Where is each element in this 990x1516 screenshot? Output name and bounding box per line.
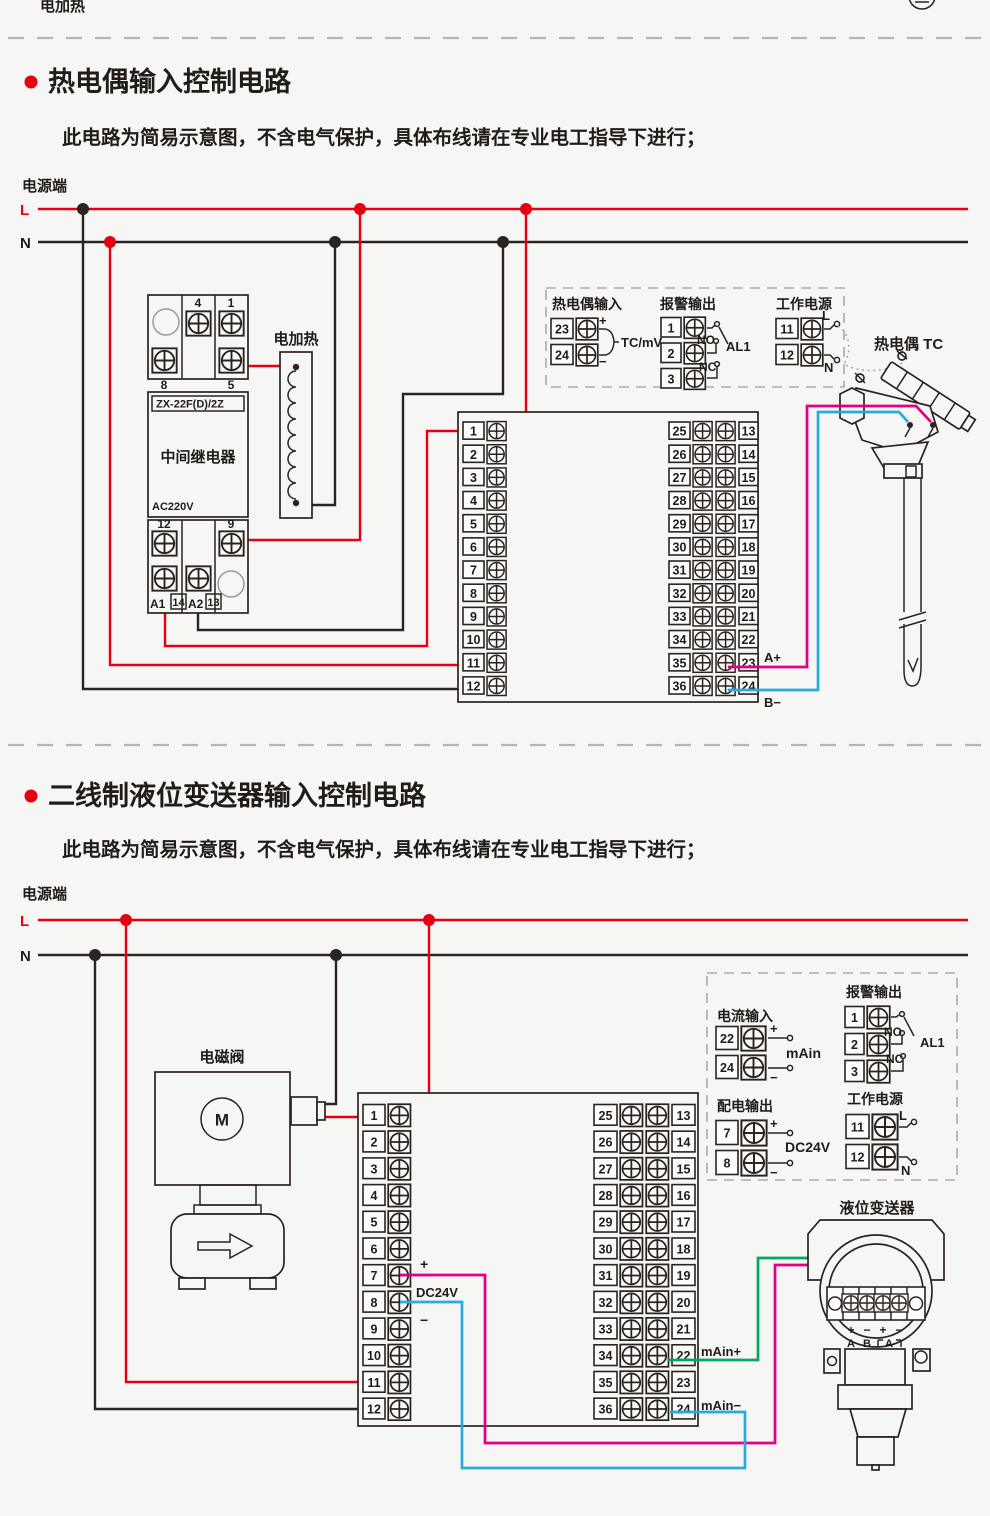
screw-terminal-icon [487,653,506,672]
screw-terminal-icon [388,1371,410,1393]
terminal-number: 26 [599,1136,613,1150]
terminal-number: 9 [470,610,477,624]
terminal-number: 2 [371,1136,378,1150]
relay-model: ZX-22F(D)/2Z [156,399,224,411]
screw-terminal-icon [388,1158,410,1180]
section2-bullet-icon [25,790,38,803]
screw-terminal-icon [620,1371,642,1393]
terminal-number: 21 [677,1322,691,1336]
screw-terminal-icon [716,607,735,626]
screw-terminal-icon [741,1055,765,1079]
terminal-number: 9 [371,1322,378,1336]
alarm-terminals: 123 [661,317,705,389]
screw-terminal-icon [388,1238,410,1260]
no-label: NO [697,333,715,347]
terminal-number: 19 [742,564,756,578]
terminal-number: 13 [677,1109,691,1123]
terminal-number: 18 [742,540,756,554]
heater-label: 电加热 [273,330,318,348]
terminal-number: 3 [470,471,477,485]
terminal-number: 27 [673,471,687,485]
valve-label: 电磁阀 [199,1048,244,1066]
terminal-mark: − [895,1323,902,1337]
terminal-number: 26 [673,448,687,462]
dist-output-title: 配电输出 [717,1098,773,1114]
n-mark: N [901,1163,910,1178]
d1-io-box: 热电偶输入 2324 + − TC/mV 报警输出 123 NO NC AL1 … [546,288,844,389]
minus-mark: − [770,1165,778,1180]
screw-terminal-icon [741,1150,766,1175]
terminal-number: 32 [599,1296,613,1310]
relay-terminal-label: 5 [228,378,235,392]
terminal-number: 24 [720,1061,734,1075]
screw-terminal-icon [646,1211,668,1233]
terminal-number: 24 [555,349,569,363]
terminal-number: 11 [467,656,480,670]
relay-terminal-label: 9 [228,517,235,531]
screw-terminal-icon [646,1104,668,1126]
d2-line-l-label: L [20,913,29,930]
terminal-number: 32 [673,587,687,601]
alarm-title: 报警输出 [846,984,902,1000]
d1-terminal-block: 123456789101112 252627282930313233343536… [458,412,781,710]
terminal-number: 16 [677,1189,691,1203]
screw-terminal-icon [487,584,506,603]
screw-terminal-icon [620,1318,642,1340]
terminal-number: 12 [851,1151,865,1165]
screw-terminal-icon [716,491,735,510]
terminal-number: 3 [371,1162,378,1176]
screw-terminal-icon [716,422,735,441]
screw-terminal-icon [693,561,712,580]
terminal-number: 35 [599,1376,613,1390]
screw-terminal-icon [716,676,735,695]
screw-terminal-icon [388,1104,410,1126]
terminal-number: 7 [371,1269,378,1283]
terminal-number: 7 [470,564,477,578]
terminal-number: 21 [742,610,756,624]
dc-minus-mark: − [420,1312,428,1328]
terminal-number: 1 [851,1011,858,1025]
screw-terminal-icon [388,1345,410,1367]
screw-terminal-icon [487,468,506,487]
d1-thermocouple: 热电偶 TC [838,326,977,686]
terminal-number: 2 [851,1038,858,1052]
current-input-terminals: 2224 [716,1026,766,1079]
terminal-number: 6 [470,540,477,554]
terminal-number: 4 [470,494,477,508]
terminal-number: 14 [677,1136,691,1150]
terminal-number: 1 [470,425,477,439]
screw-terminal-icon [646,1398,668,1420]
terminal-number: 16 [742,494,756,508]
terminal-number: 14 [742,448,756,462]
d2-line-n-label: N [20,948,31,965]
screw-terminal-icon [872,1144,897,1169]
terminal-number: 3 [851,1065,858,1079]
terminal-number: 29 [673,517,687,531]
screw-terminal-icon [620,1238,642,1260]
main-plus-label: mAin+ [701,1344,742,1359]
wiring-diagram-page: 电加热 热电偶输入控制电路 此电路为简易示意图，不含电气保护，具体布线请在专业电… [0,0,990,1516]
a-plus-label: A+ [764,650,781,665]
screw-terminal-icon [716,537,735,556]
dc-signal-label: DC24V [785,1139,831,1155]
screw-terminal-icon [693,514,712,533]
terminal-number: 34 [673,633,687,647]
plus-mark: + [770,1021,778,1036]
screw-terminal-icon [646,1131,668,1153]
terminal-number: 31 [599,1269,613,1283]
current-input-title: 电流输入 [717,1008,773,1024]
tc-label: 热电偶 TC [874,335,943,353]
terminal-number: 23 [677,1376,691,1390]
minus-mark: − [599,354,607,369]
terminal-number: 8 [724,1157,731,1171]
screw-terminal-icon [716,445,735,464]
screw-terminal-icon [716,653,735,672]
screw-terminal-icon [487,630,506,649]
n-mark: N [824,360,833,375]
d1-heater: 电加热 [273,330,318,518]
terminal-number: 10 [367,1349,381,1363]
d1-line-l-label: L [20,202,29,219]
terminal-number: 28 [599,1189,613,1203]
screw-terminal-icon [716,468,735,487]
screw-terminal-icon [693,491,712,510]
terminal-number: 33 [673,610,687,624]
screw-terminal-icon [487,491,506,510]
terminal-number: 30 [599,1242,613,1256]
collapse-icon[interactable] [909,0,935,9]
screw-terminal-icon [872,1114,897,1139]
terminal-number: 25 [599,1109,613,1123]
screw-terminal-icon [716,514,735,533]
b-minus-label: B− [764,695,781,710]
screw-terminal-icon [620,1398,642,1420]
d1-power-rails: 电源端 L N [20,177,968,252]
screw-terminal-icon [741,1026,765,1050]
terminal-number: 1 [668,321,675,335]
relay-name: 中间继电器 [160,448,236,466]
relay-voltage: AC220V [152,501,194,513]
terminal-number: 7 [724,1127,731,1141]
terminal-number: 6 [371,1242,378,1256]
relay-terminal-label: 12 [157,517,171,531]
terminal-number: 5 [470,517,477,531]
screw-terminal-icon [801,344,823,366]
terminal-number: 15 [677,1162,691,1176]
terminal-number: 8 [371,1296,378,1310]
screw-terminal-icon [716,561,735,580]
screw-terminal-icon [487,514,506,533]
d2-level-transmitter: 液位变送器 + − + − A B A [808,1199,944,1470]
screw-terminal-icon [620,1264,642,1286]
terminal-number: 2 [668,347,675,361]
terminal-number: 12 [467,679,481,693]
screw-terminal-icon [576,344,598,366]
screw-terminal-icon [693,468,712,487]
terminal-number: 18 [677,1242,691,1256]
relay-terminal-label: 13 [207,597,219,609]
screw-terminal-icon [646,1184,668,1206]
d1-line-n-label: N [20,235,31,252]
l-mark: L [822,308,830,323]
screw-terminal-icon [487,607,506,626]
screw-terminal-icon [620,1184,642,1206]
terminal-number: 30 [673,540,687,554]
terminal-number: 28 [673,494,687,508]
d1-intermediate-relay: 4 1 8 5 ZX-22F(D)/2Z 中间继电器 AC220V 12 9 A… [148,295,248,613]
dist-output-terminals: 78 [716,1120,767,1175]
terminal-number: 17 [677,1216,691,1230]
terminal-number: 13 [742,425,756,439]
alarm-name: AL1 [726,339,751,354]
d2-terminal-block: 123456789101112 252627282930313233343536… [358,1093,742,1426]
screw-terminal-icon [693,676,712,695]
screw-terminal-icon [388,1211,410,1233]
screw-terminal-icon [487,537,506,556]
screw-terminal-icon [388,1184,410,1206]
screw-terminal-icon [646,1238,668,1260]
screw-terminal-icon [620,1104,642,1126]
d2-work-power-terminals: 1112 [846,1114,898,1169]
terminal-number: 5 [371,1216,378,1230]
screw-terminal-icon [620,1291,642,1313]
terminal-number: 23 [555,323,569,337]
terminal-number: 20 [742,587,756,601]
terminal-number: 22 [742,633,756,647]
top-partial-label: 电加热 [40,0,85,15]
section1-bullet-icon [25,76,38,89]
terminal-number: 11 [367,1376,380,1390]
section1-title: 热电偶输入控制电路 [48,66,292,97]
screw-terminal-icon [693,630,712,649]
terminal-number: 34 [599,1349,613,1363]
minus-mark: − [770,1070,778,1085]
main-signal-label: mAin [786,1045,821,1061]
section2-subtitle: 此电路为简易示意图，不含电气保护，具体布线请在专业电工指导下进行； [62,838,706,861]
diagram-canvas: 电加热 热电偶输入控制电路 此电路为简易示意图，不含电气保护，具体布线请在专业电… [0,0,990,1516]
tc-signal-label: TC/mV [621,335,663,350]
screw-terminal-icon [487,561,506,580]
terminal-number: 11 [851,1121,864,1135]
terminal-number: 22 [720,1032,734,1046]
screw-terminal-icon [487,422,506,441]
screw-terminal-icon [693,445,712,464]
d2-io-box: 电流输入 2224 + − mAin 报警输出 123 NO NC AL1 配电… [707,973,957,1180]
terminal-number: 31 [673,564,687,578]
terminal-number: 27 [599,1162,613,1176]
section1-subtitle: 此电路为简易示意图，不含电气保护，具体布线请在专业电工指导下进行； [62,126,706,149]
work-power-title: 工作电源 [847,1091,903,1107]
relay-terminal-label: 4 [195,296,202,310]
work-power-terminals: 1112 [776,318,823,366]
terminal-number: 29 [599,1216,613,1230]
terminal-number: 35 [673,656,687,670]
terminal-number: 36 [673,679,687,693]
nc-label: NC [699,360,717,374]
alarm-title: 报警输出 [660,296,716,312]
transmitter-label: 液位变送器 [839,1199,915,1217]
plus-mark: + [599,313,607,328]
screw-terminal-icon [646,1345,668,1367]
d2-power-label: 电源端 [22,885,67,903]
tc-input-terminals: 2324 [551,318,598,366]
terminal-number: 10 [467,633,481,647]
screw-terminal-icon [646,1158,668,1180]
screw-terminal-icon [388,1398,410,1420]
l-mark: L [899,1108,907,1123]
screw-terminal-icon [620,1345,642,1367]
terminal-number: 36 [599,1403,613,1417]
tc-input-title: 热电偶输入 [552,296,622,312]
terminal-number: 24 [677,1403,691,1417]
screw-terminal-icon [646,1264,668,1286]
screw-terminal-icon [646,1318,668,1340]
screw-terminal-icon [487,676,506,695]
terminal-number: 1 [371,1109,378,1123]
relay-terminal-label: 8 [161,378,168,392]
terminal-number: 24 [742,679,756,693]
terminal-number: 19 [677,1269,691,1283]
section2-title: 二线制液位变送器输入控制电路 [48,780,427,811]
terminal-number: 2 [470,448,477,462]
screw-terminal-icon [693,607,712,626]
screw-terminal-icon [693,584,712,603]
screw-terminal-icon [388,1131,410,1153]
valve-motor-label: M [215,1111,229,1130]
d2-power-rails: 电源端 L N [20,885,968,965]
d1-power-label: 电源端 [22,177,67,195]
relay-terminal-label: A1 [150,597,166,611]
terminal-number: 12 [367,1403,381,1417]
terminal-mark: + [847,1323,854,1337]
screw-terminal-icon [646,1291,668,1313]
screw-terminal-icon [693,537,712,556]
relay-terminal-label: 1 [228,296,235,310]
screw-terminal-icon [620,1158,642,1180]
terminal-mark: + [879,1323,886,1337]
screw-terminal-icon [716,584,735,603]
plus-mark: + [770,1116,778,1131]
terminal-number: 25 [673,425,687,439]
terminal-number: 33 [599,1322,613,1336]
screw-terminal-icon [741,1120,766,1145]
terminal-number: 12 [780,349,794,363]
terminal-mark: − [863,1323,870,1337]
terminal-number: 3 [668,372,675,386]
screw-terminal-icon [620,1211,642,1233]
terminal-number: 11 [780,323,793,337]
screw-terminal-icon [487,445,506,464]
terminal-number: 20 [677,1296,691,1310]
screw-terminal-icon [716,630,735,649]
relay-terminal-label: A2 [188,597,204,611]
dc-label: DC24V [416,1285,458,1300]
relay-terminal-label: 14 [172,597,185,609]
screw-terminal-icon [620,1131,642,1153]
d2-alarm-terminals: 123 [845,1006,890,1083]
screw-terminal-icon [646,1371,668,1393]
d2-solenoid-valve: 电磁阀 M [155,1048,325,1289]
terminal-number: 17 [742,517,756,531]
terminal-number: 8 [470,587,477,601]
dc-plus-mark: + [420,1256,428,1272]
terminal-number: 4 [371,1189,378,1203]
alarm-name: AL1 [920,1035,945,1050]
screw-terminal-icon [801,318,823,340]
screw-terminal-icon [388,1318,410,1340]
screw-terminal-icon [693,653,712,672]
screw-terminal-icon [576,318,598,340]
terminal-number: 15 [742,471,756,485]
screw-terminal-icon [693,422,712,441]
